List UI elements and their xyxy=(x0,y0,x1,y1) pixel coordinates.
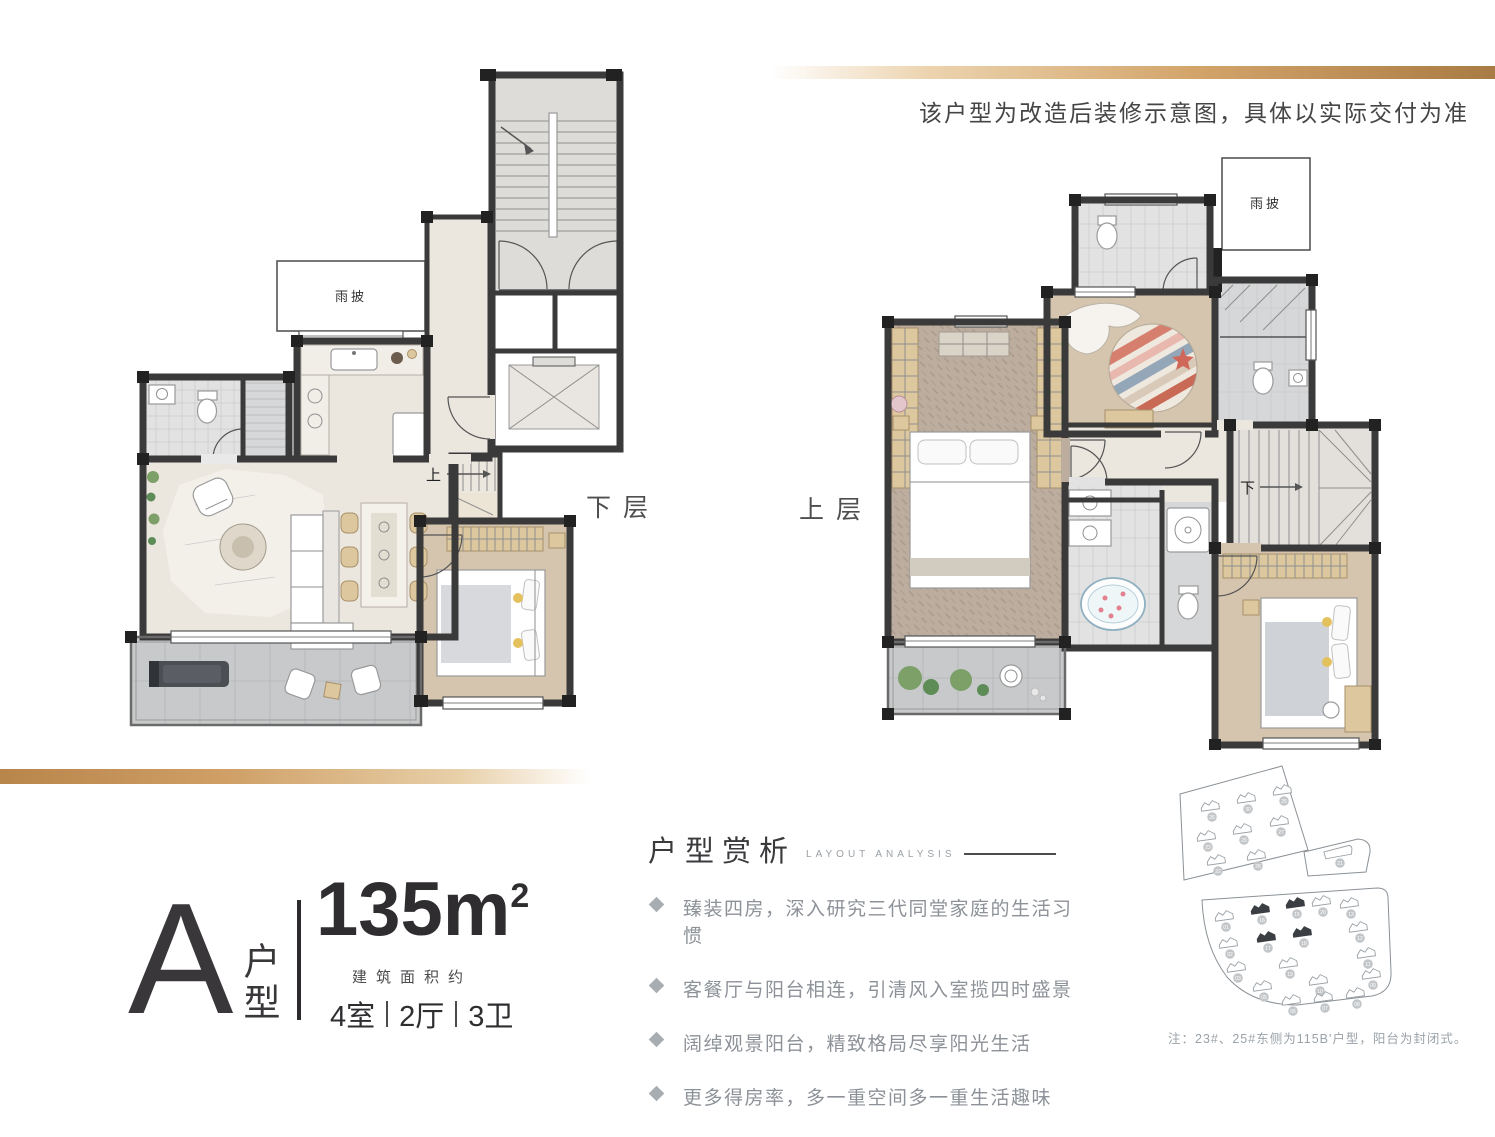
area-sup: 2 xyxy=(510,877,529,915)
site-parcel-flag xyxy=(1304,839,1370,876)
analysis-item: 客餐厅与阳台相连，引清风入室揽四时盛景 xyxy=(650,975,1088,1002)
site-plan-note: 注：23#、25#东侧为115B'户型，阳台为封闭式。 xyxy=(1168,1028,1467,1047)
svg-text:27: 27 xyxy=(1278,830,1284,836)
svg-text:03: 03 xyxy=(1235,976,1241,982)
svg-text:16: 16 xyxy=(1259,918,1265,924)
room-count-baths: 3卫 xyxy=(468,993,513,1035)
gold-gradient-bar-top xyxy=(770,66,1495,79)
rain-canopy-label-upper: 雨披 xyxy=(1250,196,1282,211)
unit-type-name: 户型 xyxy=(240,942,277,1024)
analysis-header: 户型赏析 LAYOUT ANALYSIS xyxy=(648,828,1088,870)
stair-direction-upper: 下 xyxy=(1240,480,1255,497)
svg-text:06: 06 xyxy=(1290,1009,1296,1015)
gold-gradient-bar-middle xyxy=(0,769,590,784)
analysis-item-text: 客餐厅与阳台相连，引清风入室揽四时盛景 xyxy=(683,975,1073,1002)
svg-text:20: 20 xyxy=(1320,910,1326,916)
svg-text:21: 21 xyxy=(1337,861,1343,867)
svg-text:23: 23 xyxy=(1205,845,1211,851)
svg-text:26: 26 xyxy=(1209,815,1215,821)
disclaimer-text: 该户型为改造后装修示意图，具体以实际交付为准 xyxy=(919,94,1469,128)
unit-type-letter: A xyxy=(128,880,233,1038)
svg-text:13: 13 xyxy=(1348,912,1354,918)
floor-label-lower: 下层 xyxy=(586,488,660,524)
analysis-subtitle: LAYOUT ANALYSIS xyxy=(806,849,955,860)
svg-text:29: 29 xyxy=(1241,838,1247,844)
analysis-item-text: 臻装四房，深入研究三代同堂家庭的生活习惯 xyxy=(683,894,1088,948)
analysis-item: 阔绰观景阳台，精致格局尽享阳光生活 xyxy=(650,1029,1088,1056)
svg-text:11: 11 xyxy=(1365,962,1370,968)
room-separator xyxy=(386,1001,388,1027)
svg-text:08: 08 xyxy=(1354,1002,1360,1008)
unit-area: 135m2 xyxy=(316,872,529,948)
diamond-bullet-icon xyxy=(649,1086,665,1102)
room-count-halls: 2厅 xyxy=(399,993,444,1035)
svg-text:25: 25 xyxy=(1281,799,1287,805)
diamond-bullet-icon xyxy=(649,1032,665,1048)
svg-text:09: 09 xyxy=(1370,983,1376,989)
spec-divider xyxy=(297,900,301,1020)
svg-text:28: 28 xyxy=(1255,864,1261,870)
analysis-item: 更多得房率，多一重空间多一重生活趣味 xyxy=(650,1083,1088,1110)
room-count: 4室2厅3卫 xyxy=(330,993,513,1035)
analysis-rule xyxy=(964,853,1056,855)
site-plan: 2630252329272228210116152013021718120319… xyxy=(1172,760,1404,1020)
room-separator xyxy=(455,1001,457,1027)
svg-text:30: 30 xyxy=(1245,807,1251,813)
room-count-bedrooms: 4室 xyxy=(330,993,375,1035)
area-value: 135m xyxy=(316,867,510,952)
analysis-item-text: 阔绰观景阳台，精致格局尽享阳光生活 xyxy=(683,1029,1032,1056)
diamond-bullet-icon xyxy=(649,897,665,913)
floorplan-lower: 雨披 上 xyxy=(75,65,675,745)
area-caption: 建筑面积约 xyxy=(352,966,472,987)
svg-text:19: 19 xyxy=(1287,972,1293,978)
svg-text:15: 15 xyxy=(1294,912,1300,918)
diamond-bullet-icon xyxy=(649,978,665,994)
svg-text:18: 18 xyxy=(1301,941,1307,947)
analysis-item-text: 更多得房率，多一重空间多一重生活趣味 xyxy=(683,1083,1052,1110)
svg-text:12: 12 xyxy=(1357,936,1363,942)
svg-text:01: 01 xyxy=(1223,925,1229,931)
analysis-item: 臻装四房，深入研究三代同堂家庭的生活习惯 xyxy=(650,894,1088,948)
svg-text:07: 07 xyxy=(1322,1006,1328,1012)
stair-direction-lower: 上 xyxy=(426,467,441,484)
layout-analysis: 户型赏析 LAYOUT ANALYSIS 臻装四房，深入研究三代同堂家庭的生活习… xyxy=(648,828,1088,1137)
svg-text:02: 02 xyxy=(1227,952,1233,958)
svg-text:05: 05 xyxy=(1261,995,1267,1001)
floorplan-upper: 雨披 xyxy=(865,130,1445,750)
svg-text:22: 22 xyxy=(1215,869,1221,875)
analysis-title: 户型赏析 xyxy=(648,828,796,870)
elevator xyxy=(509,357,599,429)
floor-label-upper: 上层 xyxy=(799,490,873,526)
analysis-list: 臻装四房，深入研究三代同堂家庭的生活习惯 客餐厅与阳台相连，引清风入室揽四时盛景… xyxy=(650,894,1088,1110)
rain-canopy-label-lower: 雨披 xyxy=(335,289,367,304)
svg-text:17: 17 xyxy=(1265,946,1271,952)
